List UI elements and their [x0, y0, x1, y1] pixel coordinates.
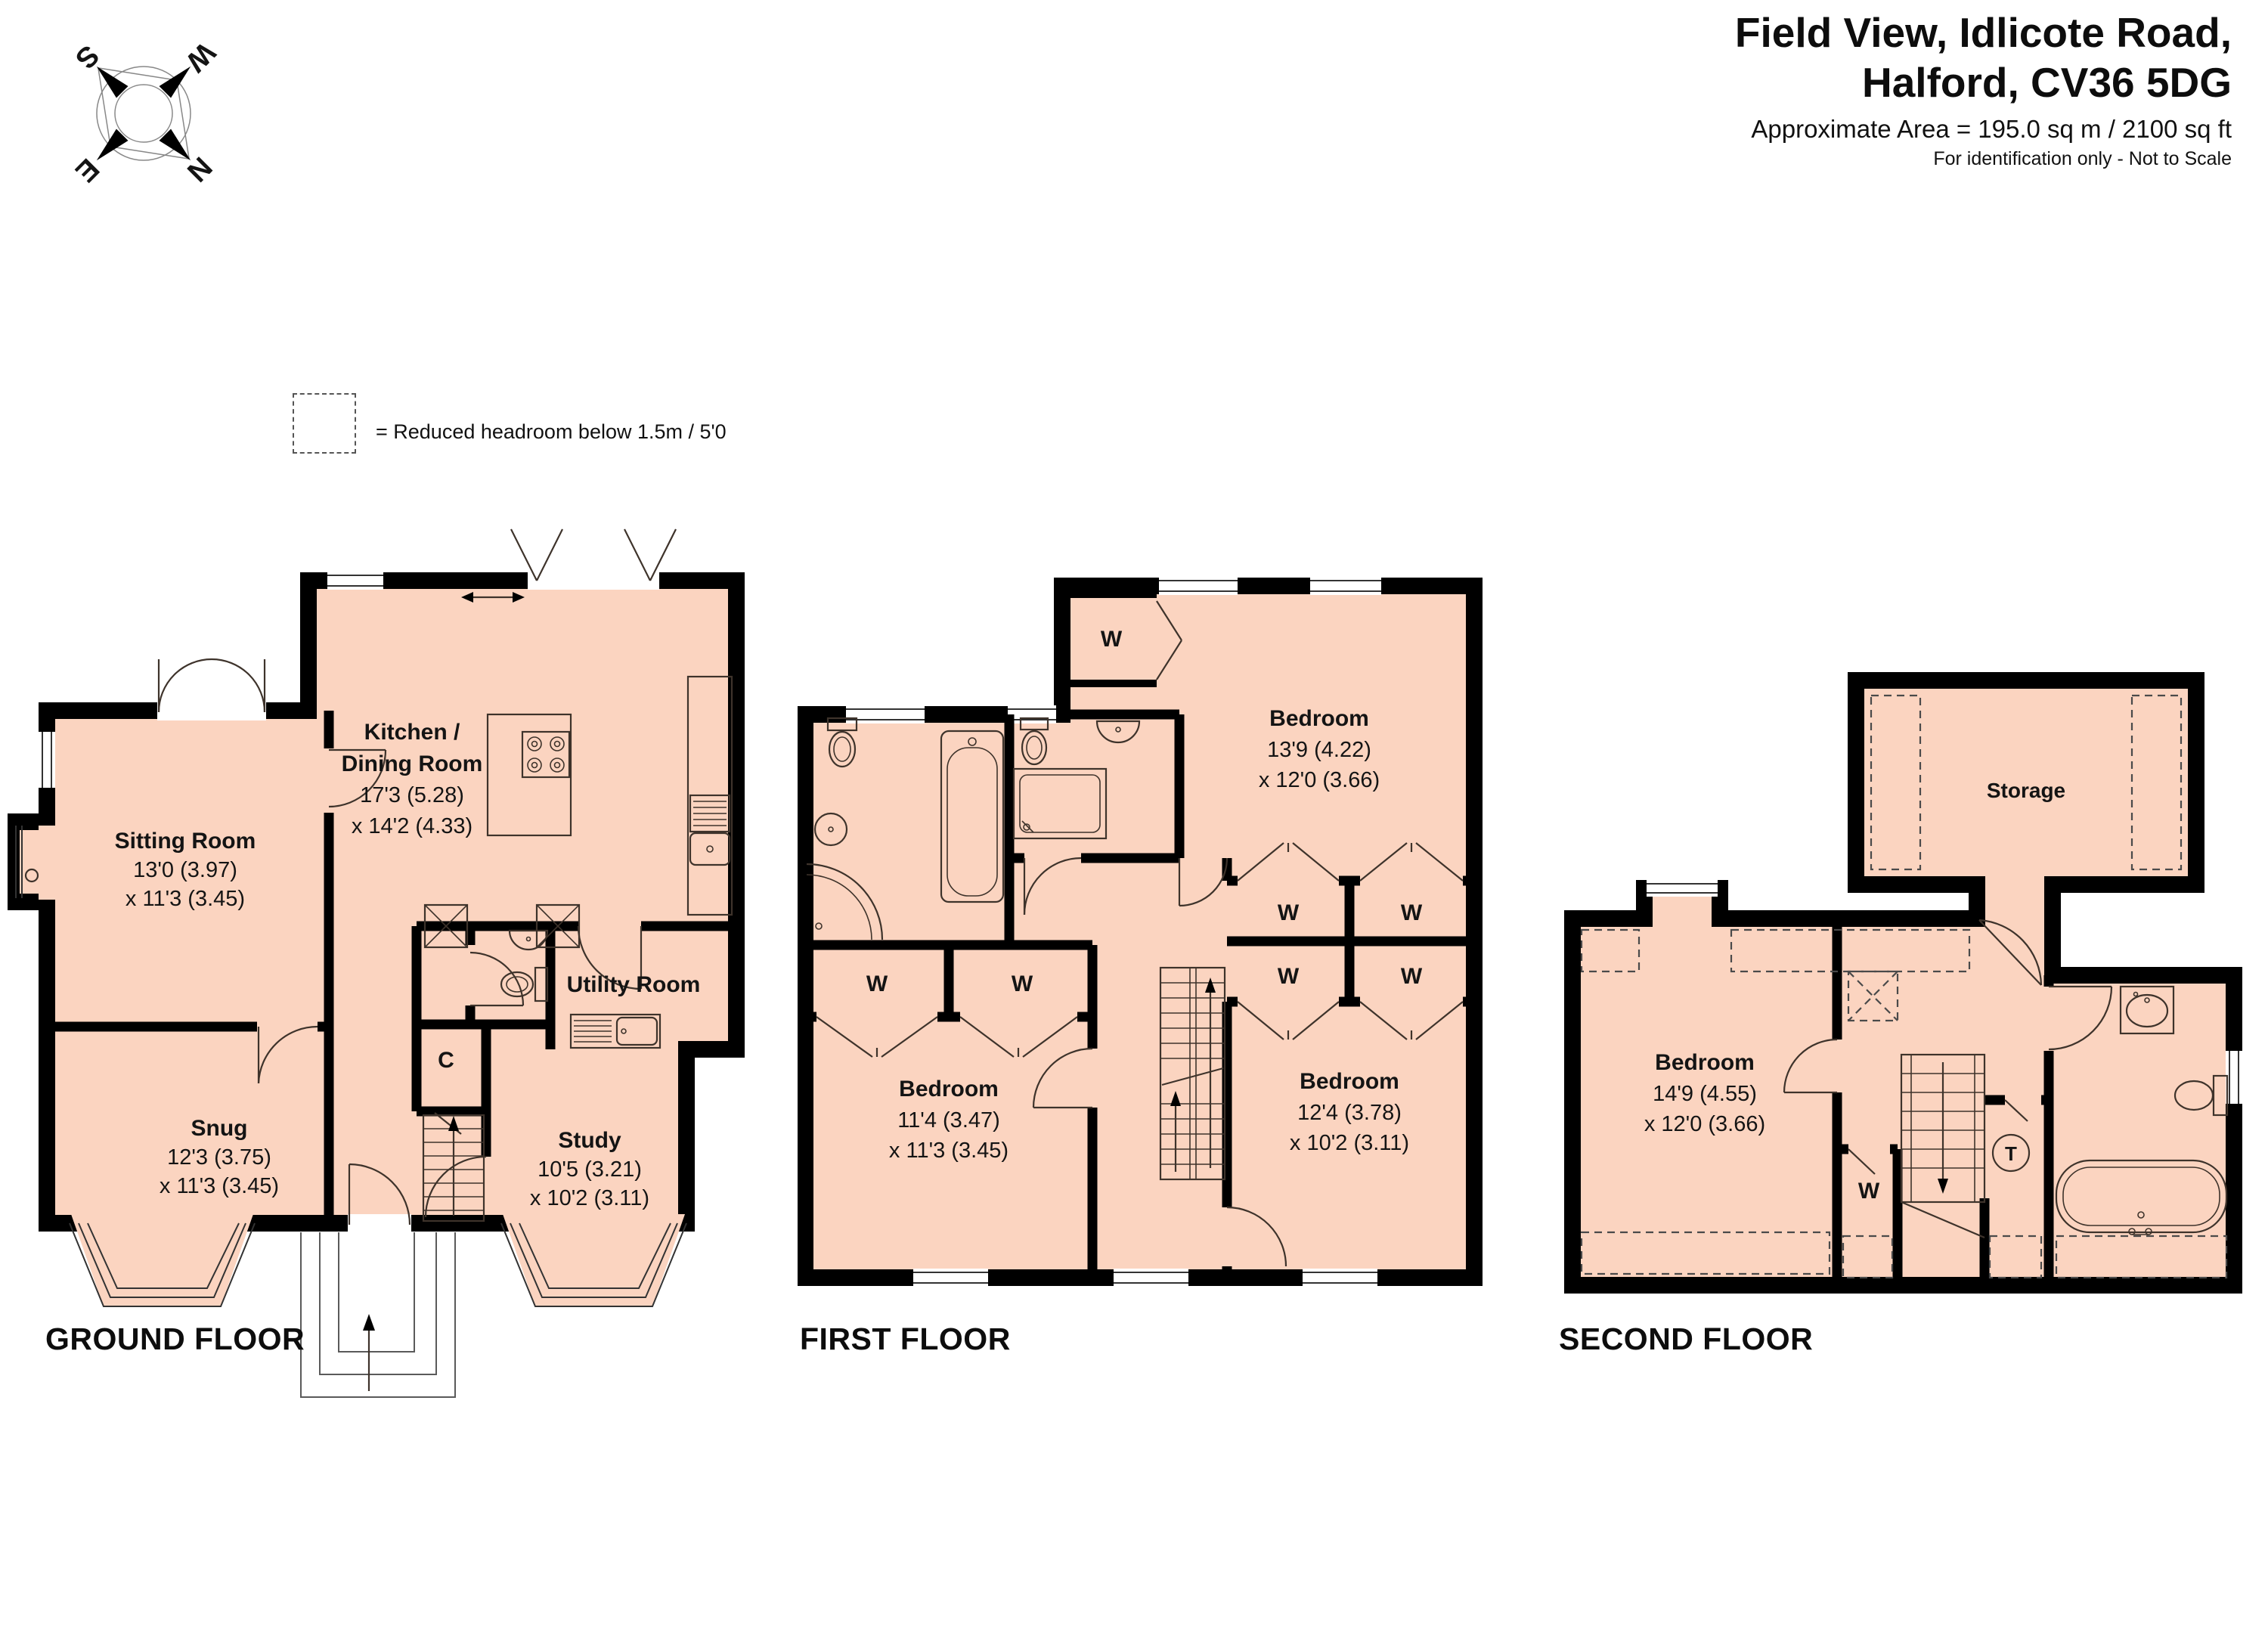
room-dim-study-1b: 10'5 (3.21)	[538, 1157, 642, 1182]
room-dim-sitting-2: x 11'3 (3.45)	[125, 887, 245, 911]
room-label-study: Study	[558, 1128, 621, 1153]
room-dim-snug-2: x 11'3 (3.45)	[160, 1174, 279, 1198]
first-footprint	[805, 586, 1474, 1278]
tank-label: T	[2005, 1142, 2017, 1165]
ground-floor-plan: Kitchen / Dining Room 17'3 (5.28) x 14'2…	[8, 522, 748, 1414]
wardrobe-label: W	[1858, 1179, 1880, 1204]
study-bay-window	[501, 1214, 686, 1306]
room-label-kitchen-line1: Kitchen /	[364, 720, 460, 745]
legend-text: = Reduced headroom below 1.5m / 5'0	[376, 420, 727, 444]
wardrobe-label: W	[1401, 964, 1423, 989]
wardrobe-label: W	[1101, 627, 1123, 652]
snug-bay-window	[70, 1214, 255, 1306]
compass-group: N E S W	[42, 11, 246, 215]
room-dim-bedroom1-1: 13'9 (4.22)	[1267, 738, 1371, 762]
sitting-room-double-doors	[157, 659, 266, 720]
entrance-arrow-icon	[363, 1314, 375, 1331]
room-dim-bedroom4-2: x 12'0 (3.66)	[1644, 1112, 1765, 1136]
wardrobe-label: W	[1278, 964, 1300, 989]
wardrobe-label: W	[1278, 900, 1300, 925]
scale-disclaimer: For identification only - Not to Scale	[1735, 148, 2232, 170]
property-title-line2: Halford, CV36 5DG	[1735, 57, 2232, 107]
room-label-sitting: Sitting Room	[115, 829, 256, 854]
sitting-room-side-window	[39, 732, 55, 788]
approximate-area: Approximate Area = 195.0 sq m / 2100 sq …	[1735, 115, 2232, 144]
room-label-bedroom2: Bedroom	[899, 1077, 999, 1102]
room-dim-kitchen-1: 17'3 (5.28)	[360, 783, 464, 807]
wardrobe-label: W	[866, 971, 888, 996]
reduced-headroom-swatch	[293, 393, 356, 454]
room-label-bedroom3: Bedroom	[1300, 1069, 1399, 1094]
compass-rose-icon: N E S W	[42, 11, 246, 215]
room-label-kitchen-line2: Dining Room	[342, 751, 483, 776]
floorplan-page: { "header": { "title_line1": "Field View…	[0, 0, 2268, 1636]
room-dim-snug-1: 12'3 (3.75)	[167, 1145, 271, 1170]
room-label-bedroom1: Bedroom	[1269, 706, 1369, 731]
wardrobe-label: W	[1012, 971, 1033, 996]
ground-floor-title: GROUND FLOOR	[45, 1322, 305, 1357]
room-label-utility: Utility Room	[567, 972, 701, 997]
room-label-snug: Snug	[191, 1116, 248, 1141]
room-dim-bedroom1-2: x 12'0 (3.66)	[1259, 768, 1380, 792]
cupboard-label: C	[438, 1048, 454, 1073]
second-floor-title: SECOND FLOOR	[1559, 1322, 1813, 1357]
first-floor-plan: Bedroom 13'9 (4.22) x 12'0 (3.66) Bedroo…	[798, 563, 1523, 1406]
first-floor-title: FIRST FLOOR	[800, 1322, 1011, 1357]
room-dim-bedroom3-1: 12'4 (3.78)	[1297, 1101, 1402, 1125]
title-block: Field View, Idlicote Road, Halford, CV36…	[1735, 8, 2232, 170]
room-dim-bedroom2-2: x 11'3 (3.45)	[889, 1139, 1009, 1163]
room-label-bedroom4: Bedroom	[1655, 1050, 1755, 1075]
second-floor-plan: T Storage Bedroom 14'9 (4.55) x 12'0 (3.…	[1557, 669, 2245, 1331]
property-title-line1: Field View, Idlicote Road,	[1735, 8, 2232, 57]
kitchen-window	[327, 572, 383, 590]
ground-footprint	[11, 581, 736, 1223]
room-dim-study-2: x 10'2 (3.11)	[530, 1186, 649, 1210]
compass-east-arrow	[91, 129, 128, 166]
room-dim-kitchen-2: x 14'2 (4.33)	[352, 814, 472, 838]
room-label-storage: Storage	[1987, 779, 2065, 802]
wardrobe-label: W	[1401, 900, 1423, 925]
entrance-porch	[301, 1232, 455, 1397]
room-dim-sitting-1: 13'0 (3.97)	[133, 858, 237, 882]
room-dim-bedroom4-1: 14'9 (4.55)	[1653, 1082, 1757, 1106]
room-dim-bedroom3-2: x 10'2 (3.11)	[1290, 1131, 1409, 1155]
second-footprint	[1572, 680, 2234, 1285]
french-doors	[511, 529, 676, 590]
room-dim-bedroom2-1: 11'4 (3.47)	[897, 1108, 1000, 1132]
